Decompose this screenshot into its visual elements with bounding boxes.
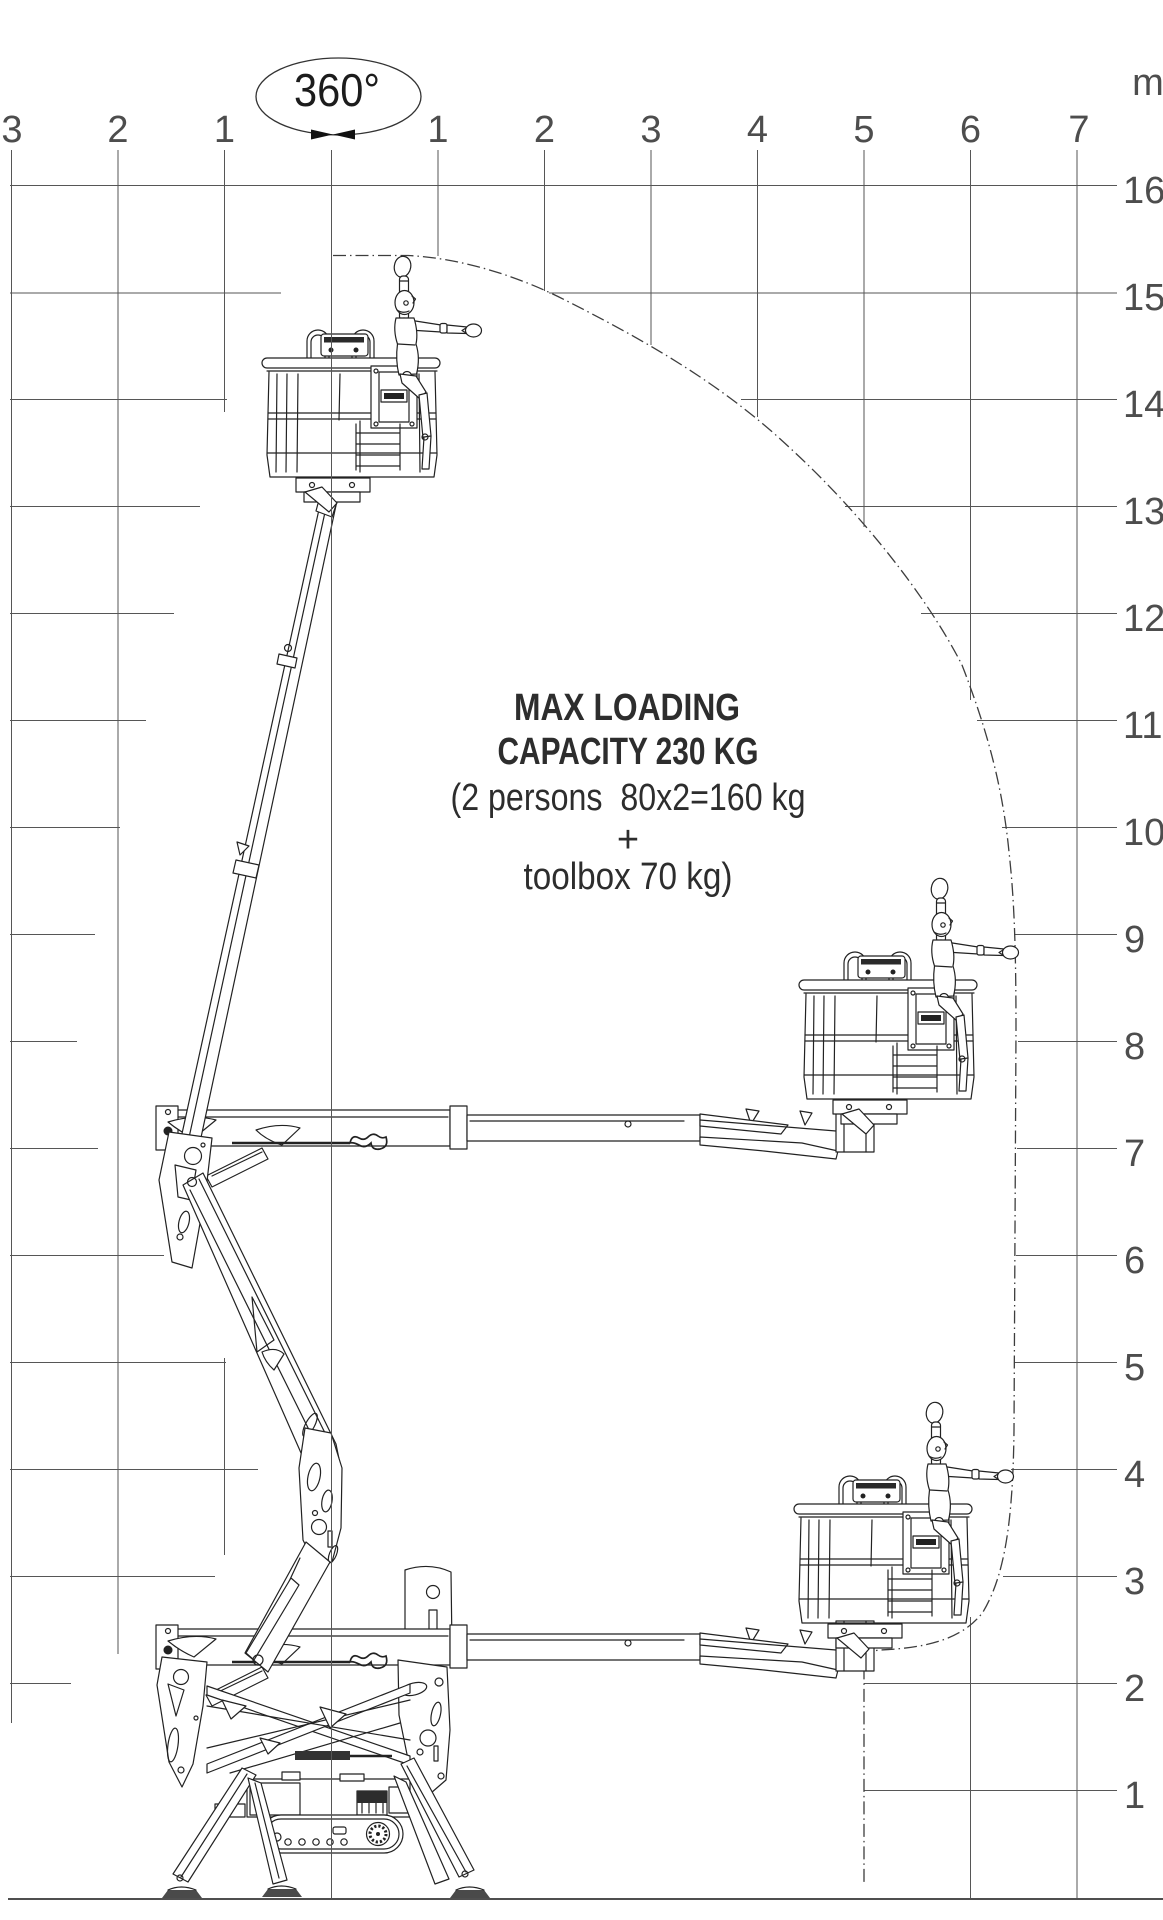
svg-text:1: 1: [427, 109, 448, 151]
svg-text:11: 11: [1123, 705, 1162, 747]
svg-text:5: 5: [1124, 1347, 1145, 1389]
svg-text:7: 7: [1124, 1133, 1145, 1175]
svg-text:15: 15: [1123, 277, 1163, 319]
svg-text:360°: 360°: [294, 64, 380, 116]
svg-text:3: 3: [1, 109, 22, 151]
svg-text:2: 2: [534, 109, 555, 151]
svg-text:1: 1: [214, 109, 235, 151]
svg-text:6: 6: [960, 109, 981, 151]
svg-text:4: 4: [747, 109, 768, 151]
svg-text:2: 2: [1124, 1668, 1145, 1710]
svg-text:12: 12: [1123, 598, 1163, 640]
svg-text:+: +: [617, 819, 639, 861]
svg-text:2: 2: [107, 109, 128, 151]
svg-text:6: 6: [1124, 1240, 1145, 1282]
svg-text:5: 5: [853, 109, 874, 151]
svg-text:(2 persons 80x2=160 kg: (2 persons 80x2=160 kg: [451, 777, 806, 819]
svg-text:8: 8: [1124, 1026, 1145, 1068]
svg-text:1: 1: [1124, 1775, 1145, 1817]
svg-text:toolbox 70 kg): toolbox 70 kg): [524, 856, 733, 898]
svg-text:9: 9: [1124, 919, 1145, 961]
svg-text:4: 4: [1124, 1454, 1145, 1496]
svg-text:m: m: [1132, 62, 1163, 104]
svg-text:16: 16: [1123, 170, 1163, 212]
svg-text:3: 3: [640, 109, 661, 151]
svg-text:CAPACITY 230 KG: CAPACITY 230 KG: [498, 731, 759, 773]
svg-text:13: 13: [1123, 491, 1163, 533]
svg-text:MAX LOADING: MAX LOADING: [514, 687, 740, 729]
svg-text:10: 10: [1123, 812, 1163, 854]
svg-text:3: 3: [1124, 1561, 1145, 1603]
svg-text:14: 14: [1123, 384, 1163, 426]
svg-text:7: 7: [1068, 109, 1089, 151]
